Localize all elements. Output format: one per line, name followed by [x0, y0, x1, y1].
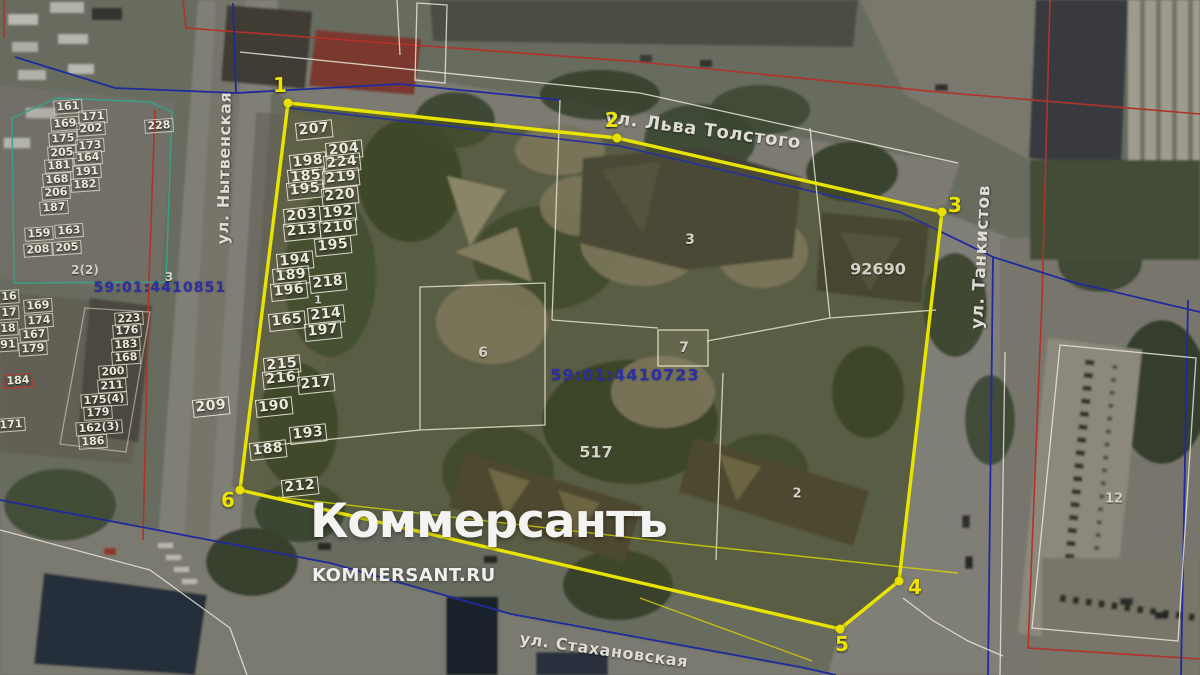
satellite-map-background — [0, 0, 1200, 675]
news-photo-map: 2072041982241852191952202031922132101951… — [0, 0, 1200, 675]
